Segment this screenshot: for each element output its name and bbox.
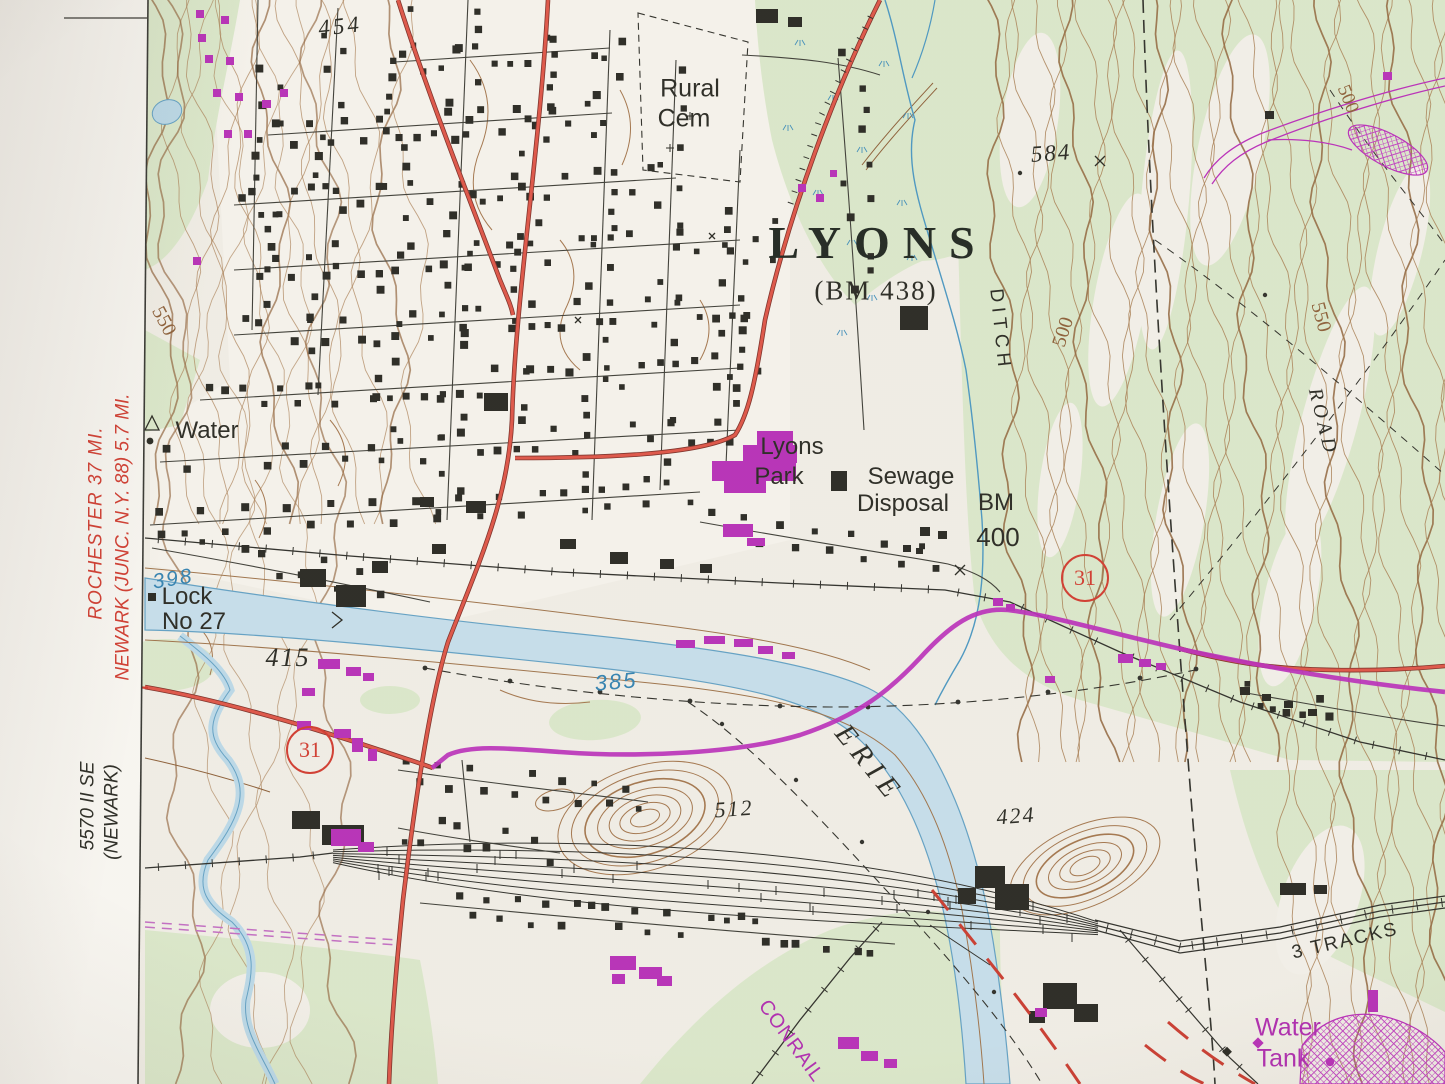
topographic-map-photo: 454 Rural Cem LYONS (BM 438) 584 500 550… (0, 0, 1445, 1084)
revised-area-hatched-se (1300, 1014, 1445, 1084)
map-margin (0, 0, 148, 1084)
paper-base (150, 0, 790, 625)
bm-x-400 (955, 565, 965, 575)
map-art (0, 0, 1445, 1084)
